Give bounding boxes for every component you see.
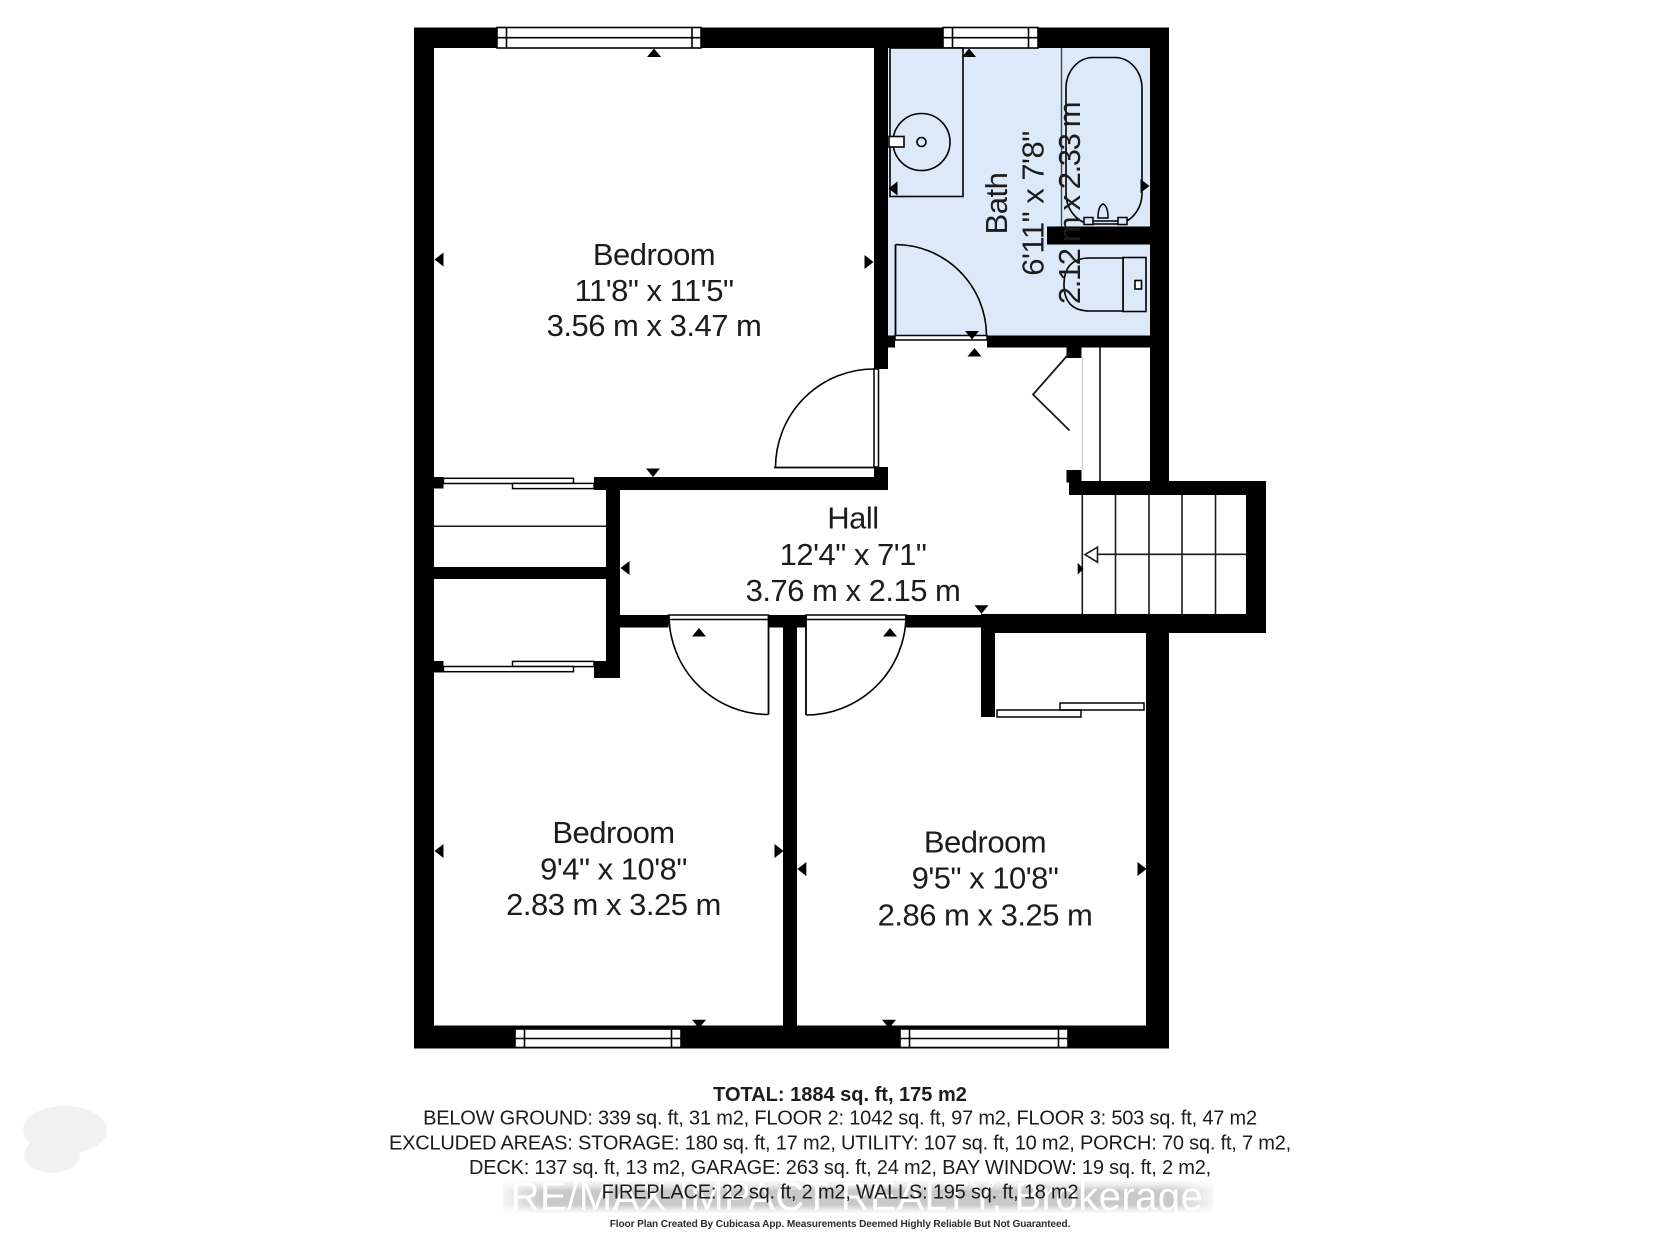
svg-text:2.86 m x 3.25 m: 2.86 m x 3.25 m [878,898,1093,933]
svg-text:2.83 m x 3.25 m: 2.83 m x 3.25 m [506,887,721,922]
svg-text:9'5" x 10'8": 9'5" x 10'8" [912,861,1059,896]
svg-text:3.76 m x 2.15 m: 3.76 m x 2.15 m [746,573,961,608]
svg-text:2.12 m x 2.33 m: 2.12 m x 2.33 m [1052,103,1087,304]
svg-text:DECK: 137 sq. ft, 13 m2, GARAG: DECK: 137 sq. ft, 13 m2, GARAGE: 263 sq.… [469,1157,1211,1179]
svg-text:EXCLUDED AREAS: STORAGE: 180 s: EXCLUDED AREAS: STORAGE: 180 sq. ft, 17 … [389,1132,1291,1154]
svg-text:BELOW GROUND: 339 sq. ft, 31 m: BELOW GROUND: 339 sq. ft, 31 m2, FLOOR 2… [423,1108,1257,1130]
svg-text:12'4" x 7'1": 12'4" x 7'1" [780,537,927,572]
svg-text:3.56 m x 3.47 m: 3.56 m x 3.47 m [547,308,762,343]
svg-text:TOTAL: 1884 sq. ft, 175 m2: TOTAL: 1884 sq. ft, 175 m2 [713,1084,967,1106]
svg-text:6'11" x 7'8": 6'11" x 7'8" [1016,131,1051,275]
svg-text:FIREPLACE: 22 sq. ft, 2 m2, WA: FIREPLACE: 22 sq. ft, 2 m2, WALLS: 195 s… [602,1182,1079,1204]
svg-text:9'4" x 10'8": 9'4" x 10'8" [540,852,687,887]
svg-text:Floor Plan Created By Cubicasa: Floor Plan Created By Cubicasa App. Meas… [610,1219,1071,1230]
svg-text:Bedroom: Bedroom [924,825,1046,860]
svg-text:Bedroom: Bedroom [593,237,715,272]
svg-text:Bath: Bath [979,173,1014,235]
svg-text:11'8" x 11'5": 11'8" x 11'5" [575,273,734,308]
svg-text:Hall: Hall [827,501,878,536]
svg-text:Bedroom: Bedroom [552,815,674,850]
